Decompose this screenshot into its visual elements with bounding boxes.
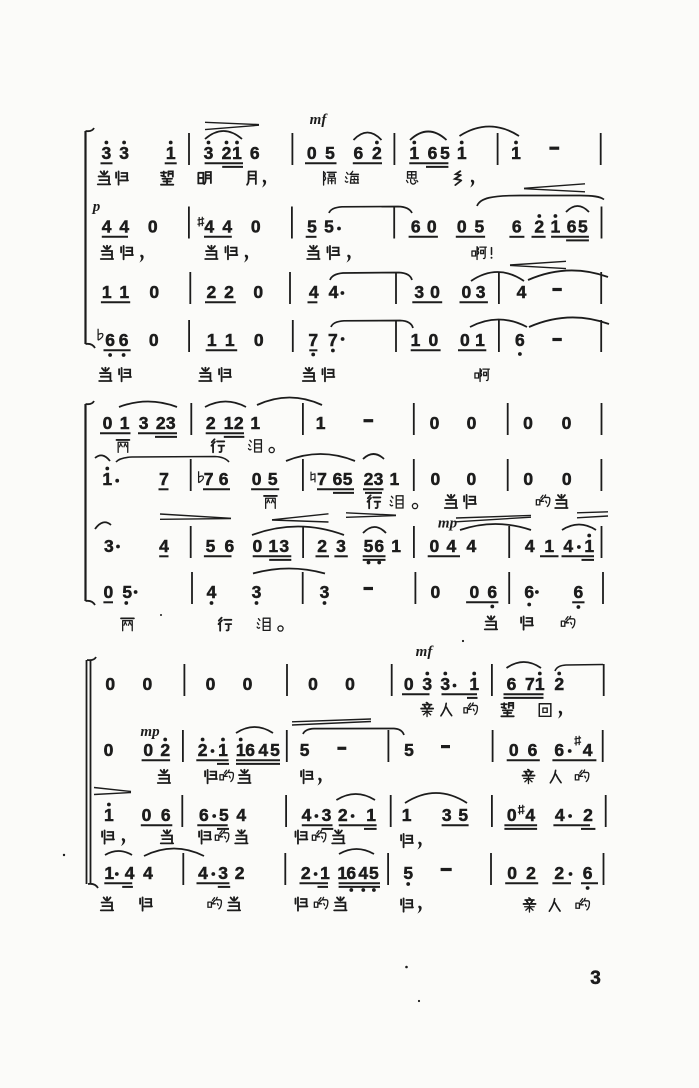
svg-text:1: 1 bbox=[584, 536, 594, 556]
svg-text:3: 3 bbox=[166, 413, 176, 433]
svg-text:6: 6 bbox=[428, 143, 438, 163]
svg-text:3: 3 bbox=[252, 582, 262, 602]
svg-text:5: 5 bbox=[343, 469, 353, 489]
svg-text:1: 1 bbox=[402, 805, 412, 825]
svg-text:5: 5 bbox=[325, 143, 335, 163]
svg-text:6: 6 bbox=[119, 330, 129, 350]
svg-text:1: 1 bbox=[120, 413, 130, 433]
svg-text:0: 0 bbox=[431, 582, 441, 602]
svg-text:2: 2 bbox=[160, 740, 170, 760]
svg-text:4: 4 bbox=[198, 863, 208, 883]
svg-text:1: 1 bbox=[232, 143, 242, 163]
svg-text:6: 6 bbox=[374, 536, 384, 556]
svg-text:1: 1 bbox=[224, 413, 234, 433]
svg-text:6: 6 bbox=[583, 863, 593, 883]
svg-text:2: 2 bbox=[338, 805, 348, 825]
svg-text:4: 4 bbox=[329, 282, 339, 302]
svg-text:0: 0 bbox=[430, 413, 440, 433]
svg-text:3: 3 bbox=[119, 143, 129, 163]
svg-text:0: 0 bbox=[467, 413, 477, 433]
svg-text:4: 4 bbox=[125, 863, 135, 883]
svg-text:0: 0 bbox=[143, 740, 153, 760]
svg-text:4: 4 bbox=[525, 805, 535, 825]
svg-text:3: 3 bbox=[218, 863, 228, 883]
svg-text:2: 2 bbox=[534, 217, 544, 237]
svg-text:1: 1 bbox=[102, 282, 112, 302]
svg-text:1: 1 bbox=[411, 330, 421, 350]
svg-text:6: 6 bbox=[225, 536, 235, 556]
svg-text:4: 4 bbox=[119, 217, 129, 237]
svg-text:0: 0 bbox=[149, 330, 159, 350]
svg-text:3: 3 bbox=[590, 968, 601, 989]
svg-text:2: 2 bbox=[222, 143, 232, 163]
svg-text:1: 1 bbox=[457, 143, 467, 163]
svg-text:0: 0 bbox=[143, 674, 153, 694]
svg-text:1: 1 bbox=[225, 330, 235, 350]
svg-text:4: 4 bbox=[236, 805, 246, 825]
svg-text:1: 1 bbox=[316, 413, 326, 433]
svg-text:3: 3 bbox=[414, 282, 424, 302]
svg-text:1: 1 bbox=[119, 282, 129, 302]
svg-text:0: 0 bbox=[457, 217, 467, 237]
svg-text:0: 0 bbox=[430, 536, 440, 556]
svg-text:6: 6 bbox=[199, 805, 209, 825]
svg-text:6: 6 bbox=[507, 674, 517, 694]
svg-text:6: 6 bbox=[487, 582, 497, 602]
svg-text:1: 1 bbox=[391, 536, 401, 556]
svg-text:5: 5 bbox=[270, 740, 280, 760]
svg-text:0: 0 bbox=[431, 469, 441, 489]
svg-text:5: 5 bbox=[364, 536, 374, 556]
svg-text:2: 2 bbox=[301, 863, 311, 883]
svg-text:2: 2 bbox=[372, 143, 382, 163]
svg-text:5: 5 bbox=[369, 863, 379, 883]
svg-text:0: 0 bbox=[345, 674, 355, 694]
svg-text:4: 4 bbox=[204, 217, 214, 237]
svg-text:4: 4 bbox=[563, 536, 573, 556]
svg-text:2: 2 bbox=[234, 413, 244, 433]
svg-text:1: 1 bbox=[218, 740, 228, 760]
svg-text:7: 7 bbox=[525, 674, 535, 694]
svg-text:0: 0 bbox=[253, 536, 263, 556]
svg-text:0: 0 bbox=[103, 413, 113, 433]
svg-text:1: 1 bbox=[535, 674, 545, 694]
svg-text:5: 5 bbox=[440, 143, 450, 163]
svg-text:4: 4 bbox=[302, 805, 312, 825]
svg-text:3: 3 bbox=[374, 469, 384, 489]
svg-text:1: 1 bbox=[207, 330, 217, 350]
svg-text:3: 3 bbox=[336, 536, 346, 556]
svg-text:6: 6 bbox=[567, 217, 577, 237]
svg-text:6: 6 bbox=[250, 143, 260, 163]
svg-text:6: 6 bbox=[346, 863, 356, 883]
svg-text:0: 0 bbox=[104, 582, 114, 602]
svg-text:4: 4 bbox=[583, 740, 593, 760]
svg-text:1: 1 bbox=[366, 805, 376, 825]
svg-text:0: 0 bbox=[206, 674, 216, 694]
svg-text:7: 7 bbox=[317, 469, 327, 489]
svg-text:2: 2 bbox=[583, 805, 593, 825]
svg-text:mf: mf bbox=[416, 644, 435, 660]
svg-text:6: 6 bbox=[245, 740, 255, 760]
svg-text:0: 0 bbox=[562, 413, 572, 433]
svg-text:5: 5 bbox=[403, 863, 413, 883]
svg-text:0: 0 bbox=[307, 143, 317, 163]
svg-text:6: 6 bbox=[333, 469, 343, 489]
svg-text:mp: mp bbox=[438, 516, 458, 532]
svg-text:1: 1 bbox=[104, 863, 114, 883]
svg-text:2: 2 bbox=[206, 413, 216, 433]
svg-text:0: 0 bbox=[523, 413, 533, 433]
svg-text:4: 4 bbox=[309, 282, 319, 302]
svg-text:0: 0 bbox=[470, 582, 480, 602]
svg-text:0: 0 bbox=[404, 674, 414, 694]
svg-text:6: 6 bbox=[105, 330, 115, 350]
svg-text:1: 1 bbox=[511, 143, 521, 163]
svg-text:0: 0 bbox=[429, 330, 439, 350]
svg-text:0: 0 bbox=[460, 330, 470, 350]
svg-text:6: 6 bbox=[574, 582, 584, 602]
svg-text:0: 0 bbox=[562, 469, 572, 489]
svg-text:5: 5 bbox=[122, 582, 132, 602]
svg-text:3: 3 bbox=[204, 143, 214, 163]
svg-text:0: 0 bbox=[105, 674, 115, 694]
svg-text:1: 1 bbox=[409, 143, 419, 163]
svg-text:4: 4 bbox=[102, 217, 112, 237]
svg-text:4: 4 bbox=[358, 863, 368, 883]
svg-text:7: 7 bbox=[328, 330, 338, 350]
svg-text:2: 2 bbox=[207, 282, 217, 302]
svg-text:0: 0 bbox=[254, 330, 264, 350]
svg-text:5: 5 bbox=[475, 217, 485, 237]
svg-text:4: 4 bbox=[222, 217, 232, 237]
svg-text:2: 2 bbox=[554, 674, 564, 694]
svg-text:7: 7 bbox=[308, 330, 318, 350]
svg-text:3: 3 bbox=[320, 582, 330, 602]
svg-text:1: 1 bbox=[551, 217, 561, 237]
svg-text:3: 3 bbox=[476, 282, 486, 302]
svg-text:mf: mf bbox=[310, 112, 329, 128]
svg-text:5: 5 bbox=[404, 740, 414, 760]
svg-text:4: 4 bbox=[159, 536, 169, 556]
svg-text:4: 4 bbox=[258, 740, 268, 760]
svg-text:5: 5 bbox=[324, 217, 334, 237]
svg-text:6: 6 bbox=[515, 330, 525, 350]
svg-text:4: 4 bbox=[143, 863, 153, 883]
svg-text:7: 7 bbox=[159, 469, 169, 489]
svg-text:2: 2 bbox=[198, 740, 208, 760]
svg-text:6: 6 bbox=[354, 143, 364, 163]
svg-text:4: 4 bbox=[525, 536, 535, 556]
svg-text:6: 6 bbox=[161, 805, 171, 825]
svg-text:1: 1 bbox=[320, 863, 330, 883]
svg-text:3: 3 bbox=[322, 805, 332, 825]
svg-text:1: 1 bbox=[268, 536, 278, 556]
svg-text:0: 0 bbox=[253, 282, 263, 302]
svg-text:6: 6 bbox=[554, 740, 564, 760]
svg-text:p: p bbox=[91, 199, 101, 215]
svg-text:3: 3 bbox=[139, 413, 149, 433]
svg-text:0: 0 bbox=[523, 469, 533, 489]
svg-text:3: 3 bbox=[102, 143, 112, 163]
svg-text:4: 4 bbox=[555, 805, 565, 825]
svg-text:0: 0 bbox=[104, 740, 114, 760]
svg-text:2: 2 bbox=[554, 863, 564, 883]
svg-text:1: 1 bbox=[544, 536, 554, 556]
svg-text:2: 2 bbox=[317, 536, 327, 556]
svg-text:1: 1 bbox=[166, 143, 176, 163]
svg-text:0: 0 bbox=[149, 282, 159, 302]
svg-text:1: 1 bbox=[390, 469, 400, 489]
svg-text:0: 0 bbox=[507, 863, 517, 883]
svg-text:0: 0 bbox=[148, 217, 158, 237]
svg-text:1: 1 bbox=[469, 674, 479, 694]
svg-text:2: 2 bbox=[364, 469, 374, 489]
svg-text:0: 0 bbox=[507, 805, 517, 825]
svg-text:3: 3 bbox=[440, 674, 450, 694]
svg-text:0: 0 bbox=[509, 740, 519, 760]
svg-text:6: 6 bbox=[411, 217, 421, 237]
svg-text:1: 1 bbox=[104, 805, 114, 825]
svg-text:4: 4 bbox=[467, 536, 477, 556]
svg-text:1: 1 bbox=[475, 330, 485, 350]
svg-text:2: 2 bbox=[224, 282, 234, 302]
svg-text:7: 7 bbox=[204, 469, 214, 489]
svg-text:2: 2 bbox=[235, 863, 245, 883]
svg-text:6: 6 bbox=[528, 740, 538, 760]
svg-text:0: 0 bbox=[252, 469, 262, 489]
svg-text:4: 4 bbox=[517, 282, 527, 302]
svg-text:0: 0 bbox=[308, 674, 318, 694]
svg-text:0: 0 bbox=[462, 282, 472, 302]
svg-text:2: 2 bbox=[156, 413, 166, 433]
svg-text:0: 0 bbox=[430, 282, 440, 302]
svg-text:5: 5 bbox=[300, 740, 310, 760]
svg-text:5: 5 bbox=[307, 217, 317, 237]
svg-text:5: 5 bbox=[578, 217, 588, 237]
svg-text:3: 3 bbox=[442, 805, 452, 825]
svg-text:3: 3 bbox=[104, 536, 114, 556]
svg-text:4: 4 bbox=[207, 582, 217, 602]
svg-text:6: 6 bbox=[512, 217, 522, 237]
svg-text:4: 4 bbox=[447, 536, 457, 556]
svg-text:0: 0 bbox=[467, 469, 477, 489]
svg-text:1: 1 bbox=[250, 413, 260, 433]
svg-text:3: 3 bbox=[279, 536, 289, 556]
svg-text:2: 2 bbox=[526, 863, 536, 883]
svg-text:0: 0 bbox=[251, 217, 261, 237]
svg-text:5: 5 bbox=[219, 805, 229, 825]
svg-text:0: 0 bbox=[142, 805, 152, 825]
svg-text:mp: mp bbox=[140, 724, 160, 740]
svg-text:6: 6 bbox=[219, 469, 229, 489]
svg-text:1: 1 bbox=[102, 469, 112, 489]
svg-text:0: 0 bbox=[243, 674, 253, 694]
svg-text:0: 0 bbox=[427, 217, 437, 237]
svg-text:3: 3 bbox=[422, 674, 432, 694]
svg-text:5: 5 bbox=[206, 536, 216, 556]
svg-text:5: 5 bbox=[458, 805, 468, 825]
svg-text:5: 5 bbox=[268, 469, 278, 489]
svg-text:6: 6 bbox=[524, 582, 534, 602]
